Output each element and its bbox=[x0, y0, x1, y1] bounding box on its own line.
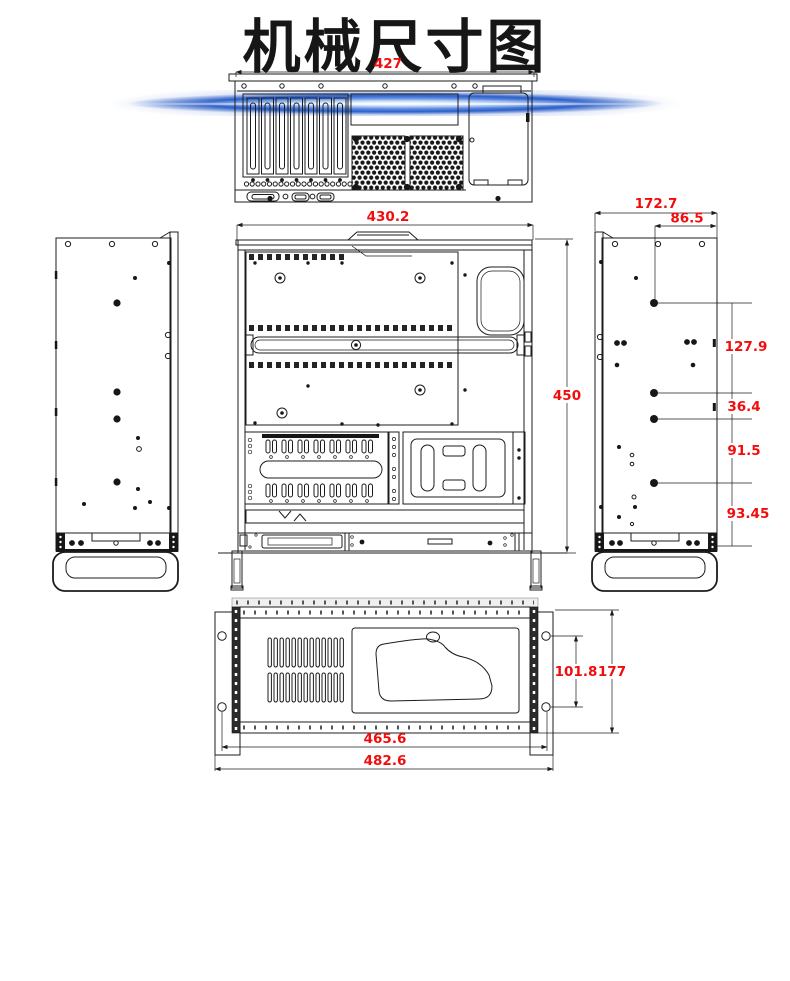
left-bottom-bracket bbox=[56, 533, 178, 552]
left-side-view bbox=[53, 232, 178, 591]
dim-front-hole-spacing: 101.8 bbox=[555, 664, 598, 680]
expansion-slots bbox=[243, 94, 348, 182]
rear-panel-view: 427 bbox=[229, 56, 537, 202]
carry-handle bbox=[348, 232, 418, 240]
dim-side-inner-width: 86.5 bbox=[670, 211, 703, 227]
right-mount-rail bbox=[530, 607, 538, 733]
right-bottom-bracket bbox=[595, 533, 717, 552]
psu-bay bbox=[469, 86, 530, 185]
left-handle bbox=[53, 552, 178, 591]
right-handle bbox=[592, 552, 717, 591]
dim-rear-width: 427 bbox=[374, 56, 402, 72]
top-view: 430.2 450 bbox=[218, 209, 584, 590]
psu-mount-bracket bbox=[389, 432, 525, 504]
dim-top-width: 430.2 bbox=[367, 209, 410, 225]
dim-front-total-width: 482.6 bbox=[364, 753, 407, 769]
dim-top-depth: 450 bbox=[553, 388, 581, 404]
dim-side-seg3: 91.5 bbox=[727, 443, 760, 459]
right-side-view: 172.7 86.5 bbox=[592, 196, 772, 591]
front-edge bbox=[238, 533, 532, 551]
front-face bbox=[240, 607, 530, 733]
dim-front-inner-width: 465.6 bbox=[364, 731, 407, 747]
dim-front-height: 177 bbox=[598, 664, 626, 680]
motherboard-tray bbox=[246, 252, 467, 427]
cross-brace bbox=[246, 332, 531, 356]
mechanical-dimension-sheet: 机械尺寸图 427 bbox=[0, 0, 790, 981]
rack-ears bbox=[218, 551, 567, 590]
rear-vent-holes bbox=[244, 182, 352, 186]
front-door bbox=[352, 628, 519, 713]
front-panel-view: 465.6 482.6 101.8 177 bbox=[215, 598, 626, 771]
front-vents bbox=[268, 638, 343, 702]
front-inner-strip bbox=[246, 510, 524, 523]
dimension-drawing: 427 bbox=[0, 0, 790, 830]
drive-cage bbox=[245, 432, 388, 504]
left-mount-rail bbox=[232, 607, 240, 733]
io-shield-cutout bbox=[351, 94, 458, 125]
rear-top-flange bbox=[229, 74, 537, 81]
dim-side-seg1: 127.9 bbox=[725, 339, 768, 355]
left-panel bbox=[56, 238, 171, 533]
top-body bbox=[238, 240, 532, 553]
dim-side-seg2: 36.4 bbox=[727, 399, 760, 415]
dim-side-seg4: 93.45 bbox=[727, 506, 770, 522]
fan-grilles bbox=[352, 136, 463, 190]
right-panel bbox=[602, 238, 717, 533]
side-cutout bbox=[477, 267, 524, 335]
